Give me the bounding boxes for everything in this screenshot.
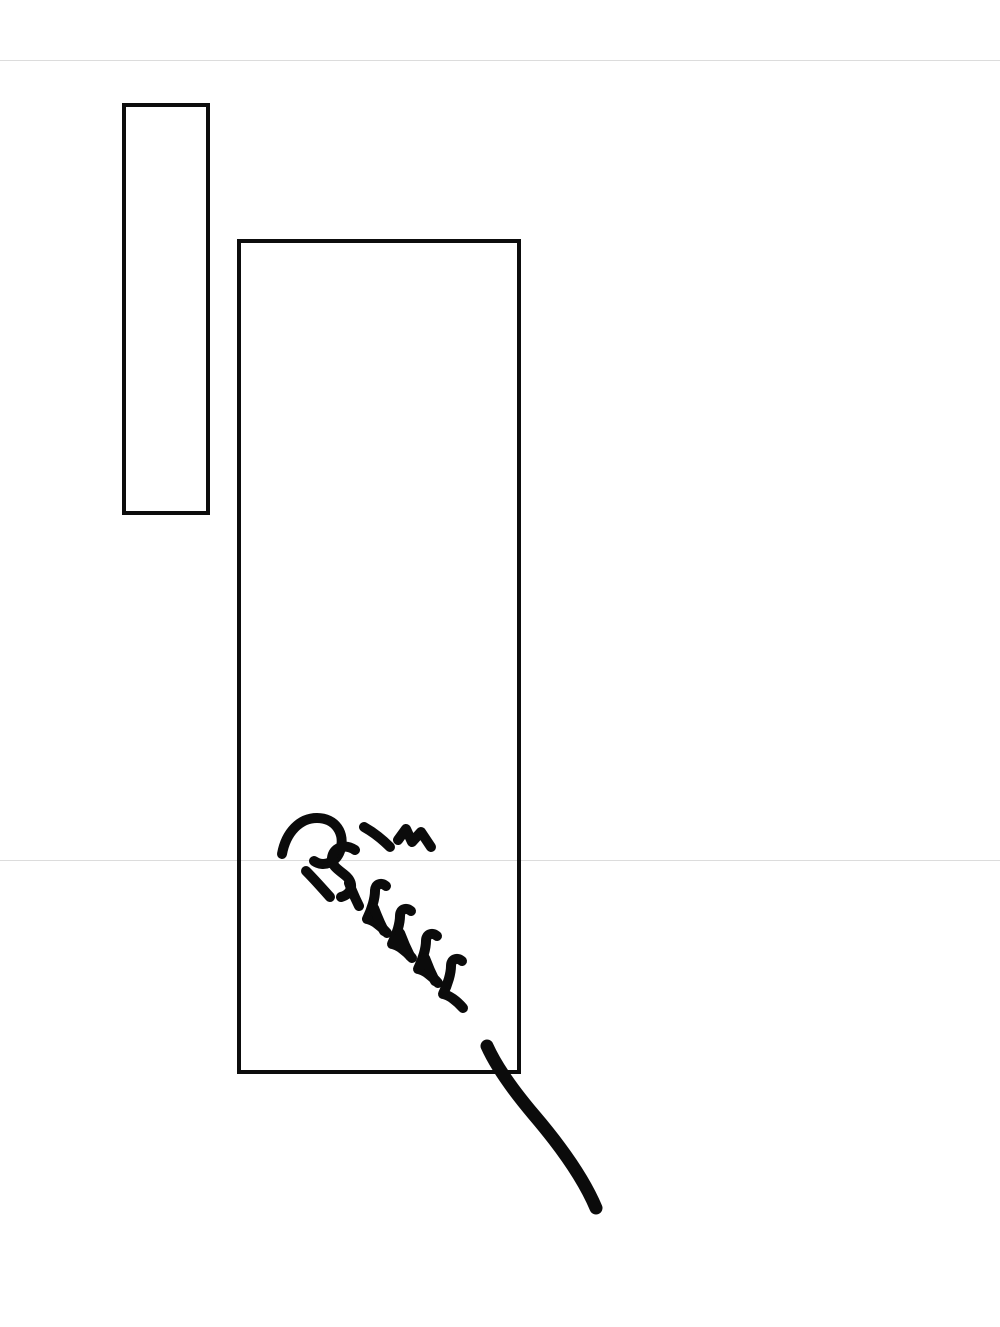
sound-effect-artwork [0, 0, 1000, 1327]
comic-page: กรี๊งงงง [0, 0, 1000, 1327]
sfx-stroke-tone-zigzag [398, 829, 431, 847]
sfx-tail-stroke [487, 1046, 596, 1208]
sfx-stroke-ng1-short [349, 883, 359, 906]
sfx-stroke-ng4-long [443, 959, 463, 1008]
sfx-stroke-vowel-dash [364, 827, 390, 847]
sfx-stroke-ko-leg [306, 871, 330, 897]
sfx-kriiing-lettering [282, 818, 463, 1008]
